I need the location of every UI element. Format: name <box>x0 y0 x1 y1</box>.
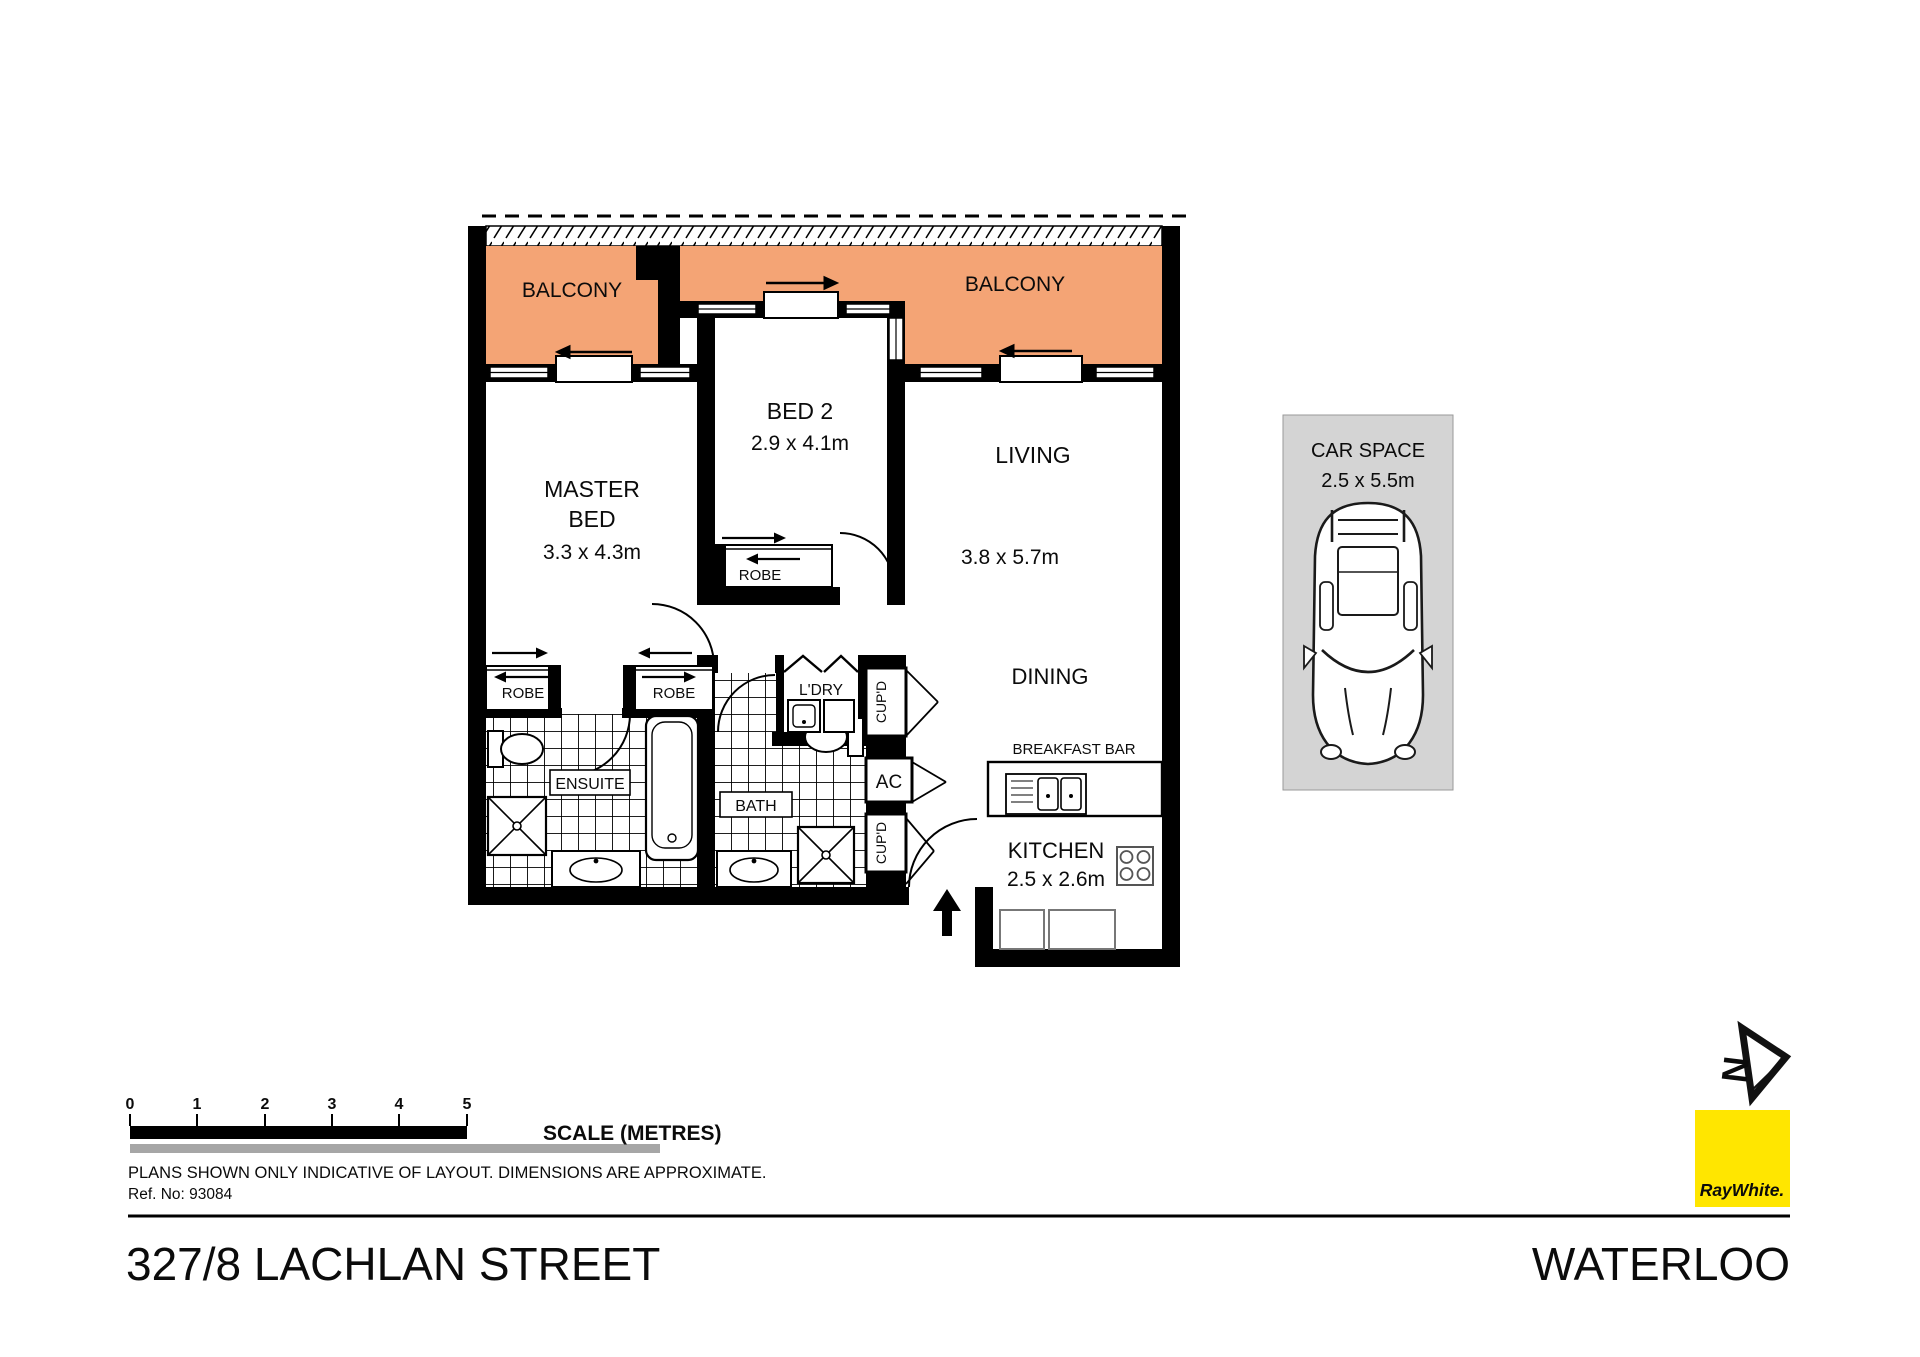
scale-tick: 1 <box>193 1096 202 1113</box>
floorplan-page: N RayWhite. 0 1 2 3 4 5 SCALE (METRES) P… <box>0 0 1920 1357</box>
cupboard-label: CUP'D <box>873 822 889 864</box>
scale-label: SCALE (METRES) <box>543 1122 722 1145</box>
scale-tick: 3 <box>328 1096 337 1113</box>
property-address: 327/8 LACHLAN STREET <box>126 1238 660 1290</box>
master-bed-label: BED <box>568 506 615 532</box>
ensuite-label: ENSUITE <box>555 776 624 793</box>
balcony-left-area <box>486 246 658 365</box>
raywhite-logo: RayWhite. <box>1695 1110 1790 1207</box>
laundry-label: L'DRY <box>799 682 843 699</box>
scale-tick: 2 <box>261 1096 270 1113</box>
footer: PLANS SHOWN ONLY INDICATIVE OF LAYOUT. D… <box>126 1164 1790 1290</box>
breakfast-bar-label: BREAKFAST BAR <box>1012 741 1135 758</box>
bath-label: BATH <box>735 798 776 815</box>
floorplan-drawing: N RayWhite. 0 1 2 3 4 5 SCALE (METRES) P… <box>0 0 1920 1357</box>
cupboard-label: CUP'D <box>873 681 889 723</box>
entry-arrow-icon <box>933 889 961 936</box>
master-bed-dims: 3.3 x 4.3m <box>543 541 641 564</box>
north-label: N <box>1713 1054 1757 1085</box>
balcony-hatch-strip <box>486 226 1162 246</box>
suburb-name: WATERLOO <box>1532 1238 1790 1290</box>
car-space-label: CAR SPACE <box>1311 440 1425 462</box>
reference-number: Ref. No: 93084 <box>128 1186 233 1203</box>
balcony-right-label: BALCONY <box>965 273 1065 296</box>
kitchen-cabinet <box>1000 910 1044 949</box>
kitchen-cabinet <box>1049 910 1115 949</box>
agency-wordmark: RayWhite. <box>1700 1180 1785 1200</box>
kitchen-label: KITCHEN <box>1008 838 1105 863</box>
scale-tick: 4 <box>395 1096 404 1113</box>
disclaimer-text: PLANS SHOWN ONLY INDICATIVE OF LAYOUT. D… <box>128 1164 766 1182</box>
robe-label: ROBE <box>502 685 545 702</box>
car-icon <box>1304 503 1432 764</box>
dining-label: DINING <box>1012 664 1089 689</box>
bed2-label: BED 2 <box>767 398 833 424</box>
scale-bar: 0 1 2 3 4 5 SCALE (METRES) <box>126 1096 722 1153</box>
living-dims: 3.8 x 5.7m <box>961 546 1059 569</box>
entry-door-arc <box>909 819 977 887</box>
car-space-dims: 2.5 x 5.5m <box>1321 470 1414 492</box>
ac-label: AC <box>876 772 902 793</box>
balcony-left-label: BALCONY <box>522 279 622 302</box>
toilet-icon <box>501 734 543 764</box>
bed2-door-arc <box>840 533 894 587</box>
living-label: LIVING <box>995 442 1070 468</box>
scale-tick: 0 <box>126 1096 135 1113</box>
scale-tick: 5 <box>463 1096 472 1113</box>
robe-label: ROBE <box>739 567 782 584</box>
robe-label: ROBE <box>653 685 696 702</box>
bed2-dims: 2.9 x 4.1m <box>751 432 849 455</box>
master-bed-label: MASTER <box>544 476 640 502</box>
north-arrow-icon: N <box>1713 1028 1786 1098</box>
kitchen-dims: 2.5 x 2.6m <box>1007 868 1105 891</box>
washer-icon <box>824 700 854 732</box>
